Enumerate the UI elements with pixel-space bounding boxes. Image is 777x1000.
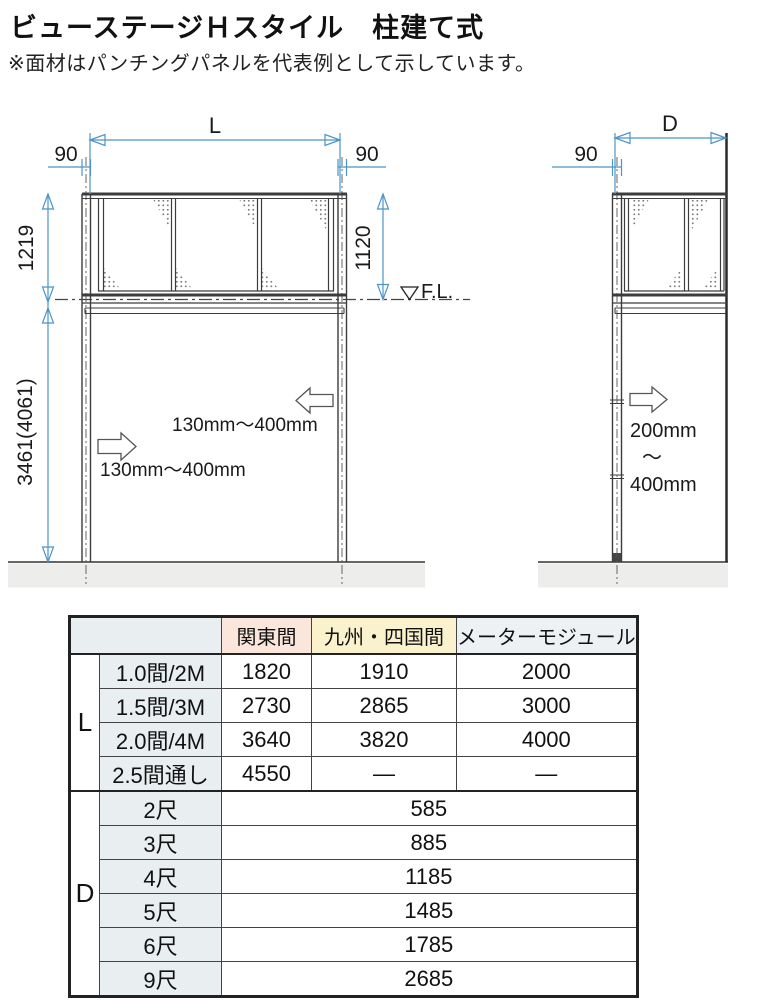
cell-value: 2000 [457,654,638,689]
side-ground [538,562,728,588]
cell-value: 1820 [222,654,312,689]
row-label: 2尺 [100,791,222,826]
row-label: 3尺 [100,826,222,860]
cell-value: 1185 [222,860,638,894]
front-elevation-drawing: F.L. L [0,105,475,605]
cell-value: 3640 [222,723,312,757]
cell-value: 585 [222,791,638,826]
cell-value: — [457,757,638,792]
side-range-top-label: 200mm [630,420,697,442]
table-row: 2.5間通し 4550 — — [70,757,638,792]
arrow-right-icon [630,387,667,412]
dimension-table: 関東間 九州・四国間 メーターモジュール L 1.0間/2M 1820 1910… [68,615,639,998]
dim-d-label: D [662,111,678,136]
front-deck [82,295,347,314]
table-row: 6尺 1785 [70,928,638,962]
cell-value: 885 [222,826,638,860]
row-label: 1.5間/3M [100,689,222,723]
front-ground [8,562,425,588]
front-range-lower-label: 130mm〜400mm [100,460,246,481]
dim-1120-label: 1120 [352,225,375,270]
cell-value: 1485 [222,894,638,928]
dim-90-left-label: 90 [54,143,77,166]
row-label: 2.5間通し [100,757,222,792]
row-label: 4尺 [100,860,222,894]
row-label: 5尺 [100,894,222,928]
table-row: 4尺 1185 [70,860,638,894]
group-label-l: L [70,654,100,791]
table-corner-cell [70,617,222,655]
front-railing [82,194,347,291]
col-header-meter-module: メーターモジュール [457,617,638,655]
table-row: L 1.0間/2M 1820 1910 2000 [70,654,638,689]
side-elevation-drawing: D 90 200mm 〜 400mm [480,105,777,605]
dim-l-label: L [209,113,221,138]
arrow-right-icon [98,433,136,460]
cell-value: 2730 [222,689,312,723]
table-row: 9尺 2685 [70,962,638,997]
side-range-bottom-label: 400mm [630,474,697,496]
table-row: 3尺 885 [70,826,638,860]
side-railing [612,194,727,291]
front-post-centerlines [86,157,342,584]
arrow-left-icon [296,388,333,413]
cell-value: 4550 [222,757,312,792]
row-label: 6尺 [100,928,222,962]
dim-90-right-label: 90 [355,143,378,166]
fl-level-icon [401,287,418,300]
table-row: D 2尺 585 [70,791,638,826]
front-range-upper-label: 130mm〜400mm [172,415,318,436]
side-range-tilde: 〜 [642,447,662,469]
row-label: 1.0間/2M [100,654,222,689]
cell-value: — [312,757,457,792]
dim-1219-label: 1219 [15,225,38,272]
side-deck [612,295,727,314]
row-label: 2.0間/4M [100,723,222,757]
fl-label: F.L. [421,281,453,303]
dim-3461-label: 3461(4061) [14,378,37,485]
table-row: 1.5間/3M 2730 2865 3000 [70,689,638,723]
front-posts [82,194,347,562]
cell-value: 1910 [312,654,457,689]
front-dimensions [43,133,389,562]
panel-note: ※面材はパンチングパネルを代表例として示しています。 [8,47,536,76]
side-dim-90-label: 90 [574,143,597,166]
col-header-kanto: 関東間 [222,617,312,655]
cell-value: 1785 [222,928,638,962]
cell-value: 2865 [312,689,457,723]
group-label-d: D [70,791,100,997]
cell-value: 3000 [457,689,638,723]
page-title: ビューステージＨスタイル 柱建て式 [10,6,484,45]
table-row: 2.0間/4M 3640 3820 4000 [70,723,638,757]
cell-value: 3820 [312,723,457,757]
punching-panel-texture [104,199,327,291]
page: ビューステージＨスタイル 柱建て式 ※面材はパンチングパネルを代表例として示して… [0,0,777,1000]
cell-value: 4000 [457,723,638,757]
row-label: 9尺 [100,962,222,997]
side-panel-texture [631,199,718,291]
col-header-kyushu-shikoku: 九州・四国間 [312,617,457,655]
table-row: 5尺 1485 [70,894,638,928]
cell-value: 2685 [222,962,638,997]
